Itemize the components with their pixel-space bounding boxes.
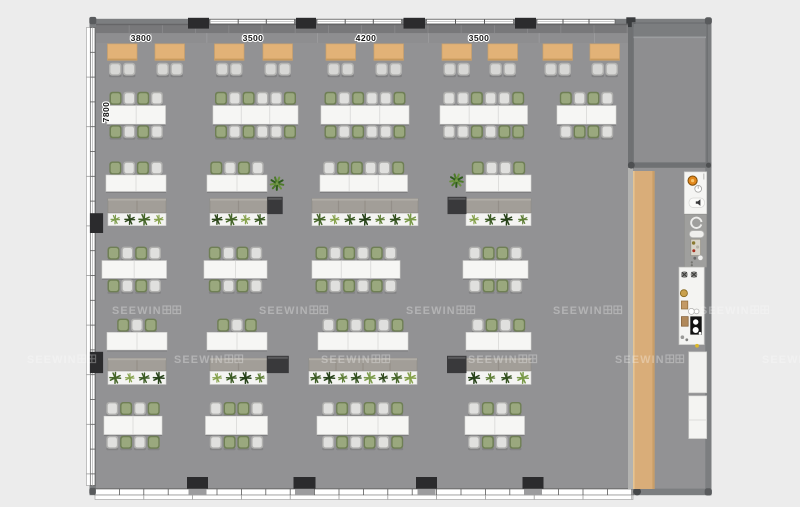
svg-text:SEEWIN: SEEWIN	[321, 354, 371, 366]
svg-text:4200: 4200	[356, 33, 377, 43]
svg-text:SEEWIN: SEEWIN	[406, 305, 456, 317]
svg-text:SEEWIN: SEEWIN	[700, 305, 750, 317]
svg-text:7800: 7800	[101, 102, 111, 123]
svg-text:SEEWIN: SEEWIN	[112, 305, 162, 317]
svg-text:SEEWIN: SEEWIN	[27, 354, 77, 366]
svg-text:3500: 3500	[243, 33, 264, 43]
svg-text:SEEWIN: SEEWIN	[468, 354, 518, 366]
svg-text:SEEWIN: SEEWIN	[615, 354, 665, 366]
svg-text:SEEWIN: SEEWIN	[259, 305, 309, 317]
svg-text:SEEWIN: SEEWIN	[553, 305, 603, 317]
svg-text:SEEWIN: SEEWIN	[762, 354, 800, 366]
svg-text:3800: 3800	[131, 33, 152, 43]
svg-text:3500: 3500	[469, 33, 490, 43]
svg-text:SEEWIN: SEEWIN	[174, 354, 224, 366]
